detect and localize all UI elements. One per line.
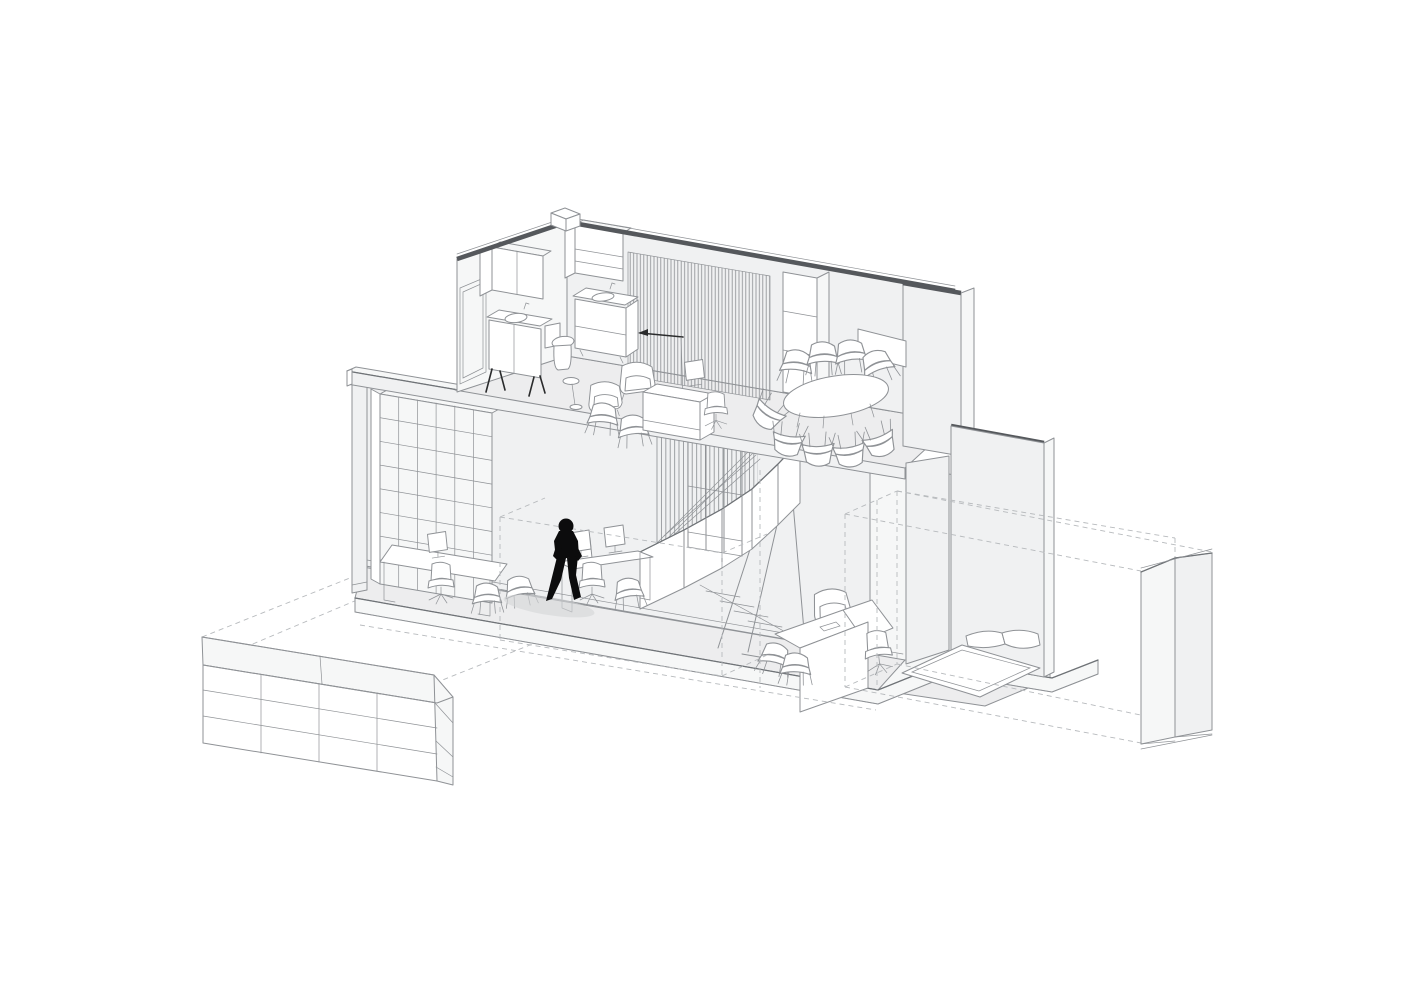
storage-lockers-unit	[202, 637, 453, 785]
detached-wall-panel	[1141, 549, 1212, 749]
axonometric-drawing-canvas	[0, 0, 1414, 1000]
left-end-wall-cut	[352, 376, 367, 593]
axonometric-drawing	[0, 0, 1414, 1000]
wall-cabinet	[480, 242, 551, 299]
structural-pier	[906, 456, 949, 664]
